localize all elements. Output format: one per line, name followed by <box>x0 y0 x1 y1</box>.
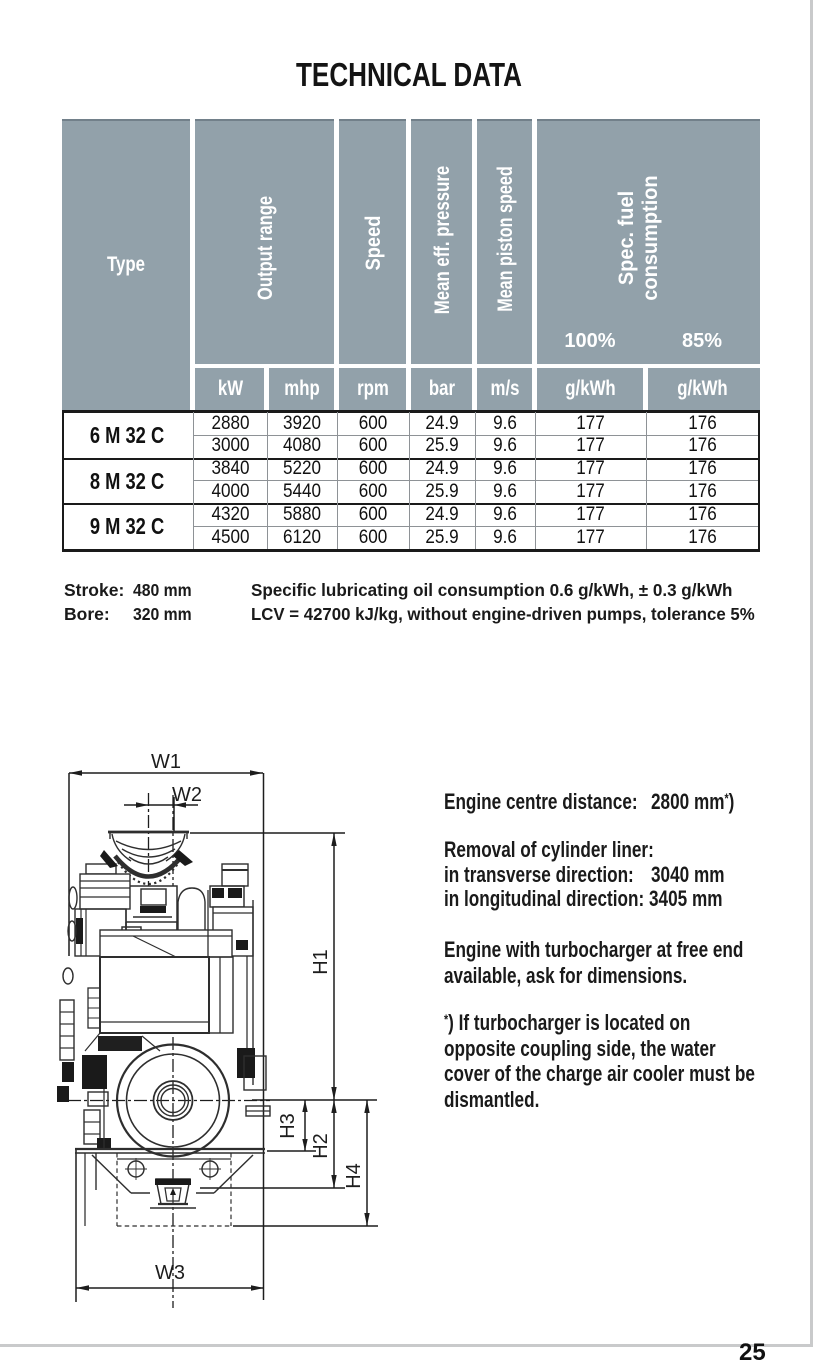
svg-text:H1: H1 <box>310 949 332 975</box>
svg-text:W3: W3 <box>155 1262 185 1284</box>
svg-text:H2: H2 <box>310 1133 332 1159</box>
svg-text:W2: W2 <box>172 784 202 806</box>
svg-text:W1: W1 <box>151 751 181 773</box>
svg-text:H4: H4 <box>343 1163 365 1189</box>
svg-text:H3: H3 <box>277 1113 299 1139</box>
